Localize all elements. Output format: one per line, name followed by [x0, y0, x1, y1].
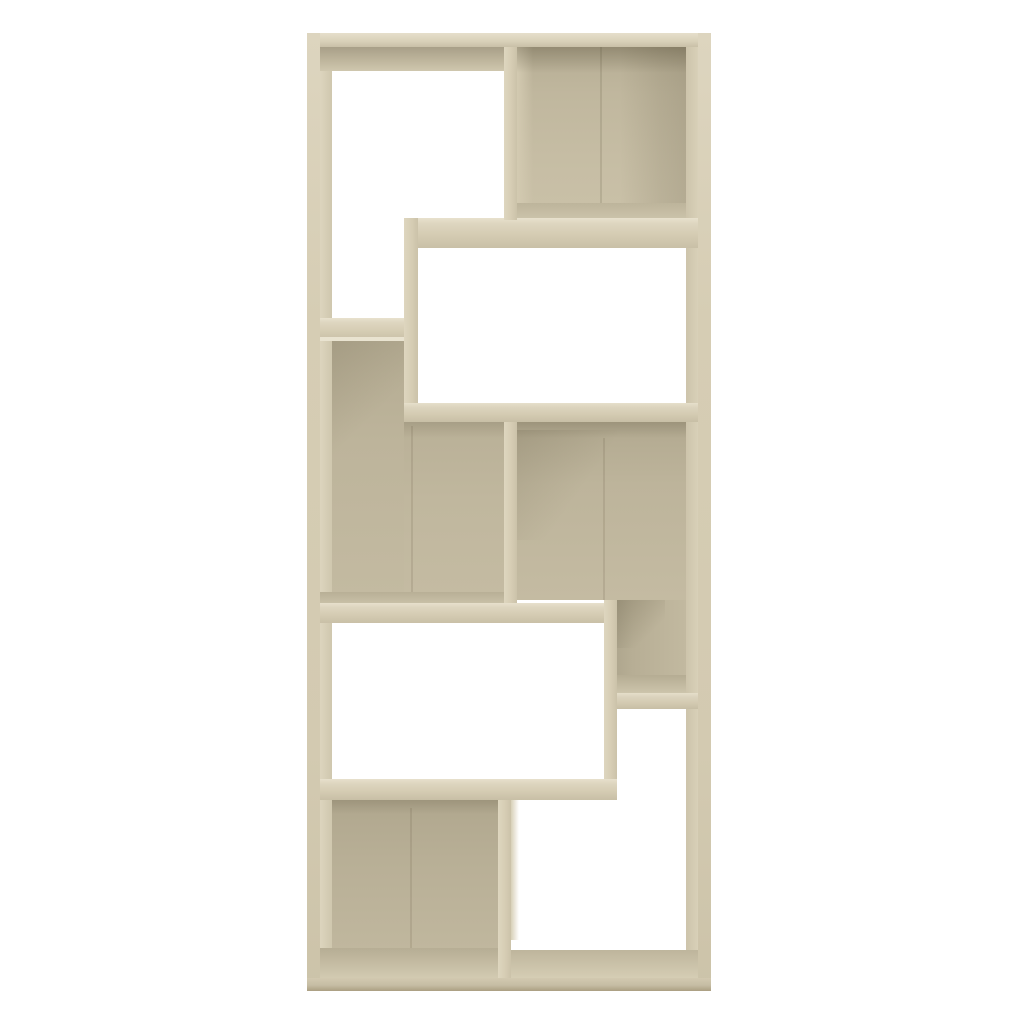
compartment-midright-floor	[617, 675, 686, 695]
compartment-midleft-board-seam	[411, 426, 413, 596]
compartment-midleft-back-panel-lower	[404, 422, 504, 596]
compartment-bottomleft-back-panel	[332, 800, 498, 950]
compartment-midleft-under-shelf-shade	[404, 422, 504, 438]
divider-bottom-right-side-face	[511, 800, 519, 940]
compartment-bottomleft-board-seam	[410, 808, 412, 950]
compartment-midright-corner-shade	[517, 430, 617, 540]
left-panel-inner-face	[320, 47, 332, 978]
compartment-midleft-corner-shade	[332, 341, 404, 481]
step-divider-upper	[404, 218, 418, 422]
compartment-bottomleft-floor	[318, 948, 504, 978]
divider-top	[504, 47, 517, 220]
compartment-midright-lower-corner-shade	[617, 600, 665, 648]
right-panel-inner-face	[686, 47, 698, 978]
shelf-right-lower	[617, 693, 698, 709]
compartment-bottomright-floor	[504, 950, 698, 978]
right-side-panel	[698, 33, 711, 991]
shelf-left-lower	[312, 779, 617, 800]
divider-bottom	[498, 800, 511, 978]
compartment-topright-ceiling-shade	[517, 47, 686, 73]
shelf-left-middle	[312, 603, 604, 623]
left-side-panel	[307, 33, 320, 991]
shelf-right-upper	[404, 218, 698, 248]
divider-middle	[504, 422, 517, 606]
step-divider-lower	[604, 600, 617, 780]
top-underside-shade-left	[320, 47, 504, 71]
top-panel	[307, 33, 711, 47]
bottom-panel-front-edge	[307, 978, 711, 991]
shelf-right-middle	[404, 403, 698, 422]
product-photo-canvas	[0, 0, 1024, 1024]
compartment-midright-board-seam	[603, 438, 605, 600]
compartment-bottomleft-under-shelf-shade	[332, 800, 498, 814]
bookshelf	[0, 0, 1024, 1024]
